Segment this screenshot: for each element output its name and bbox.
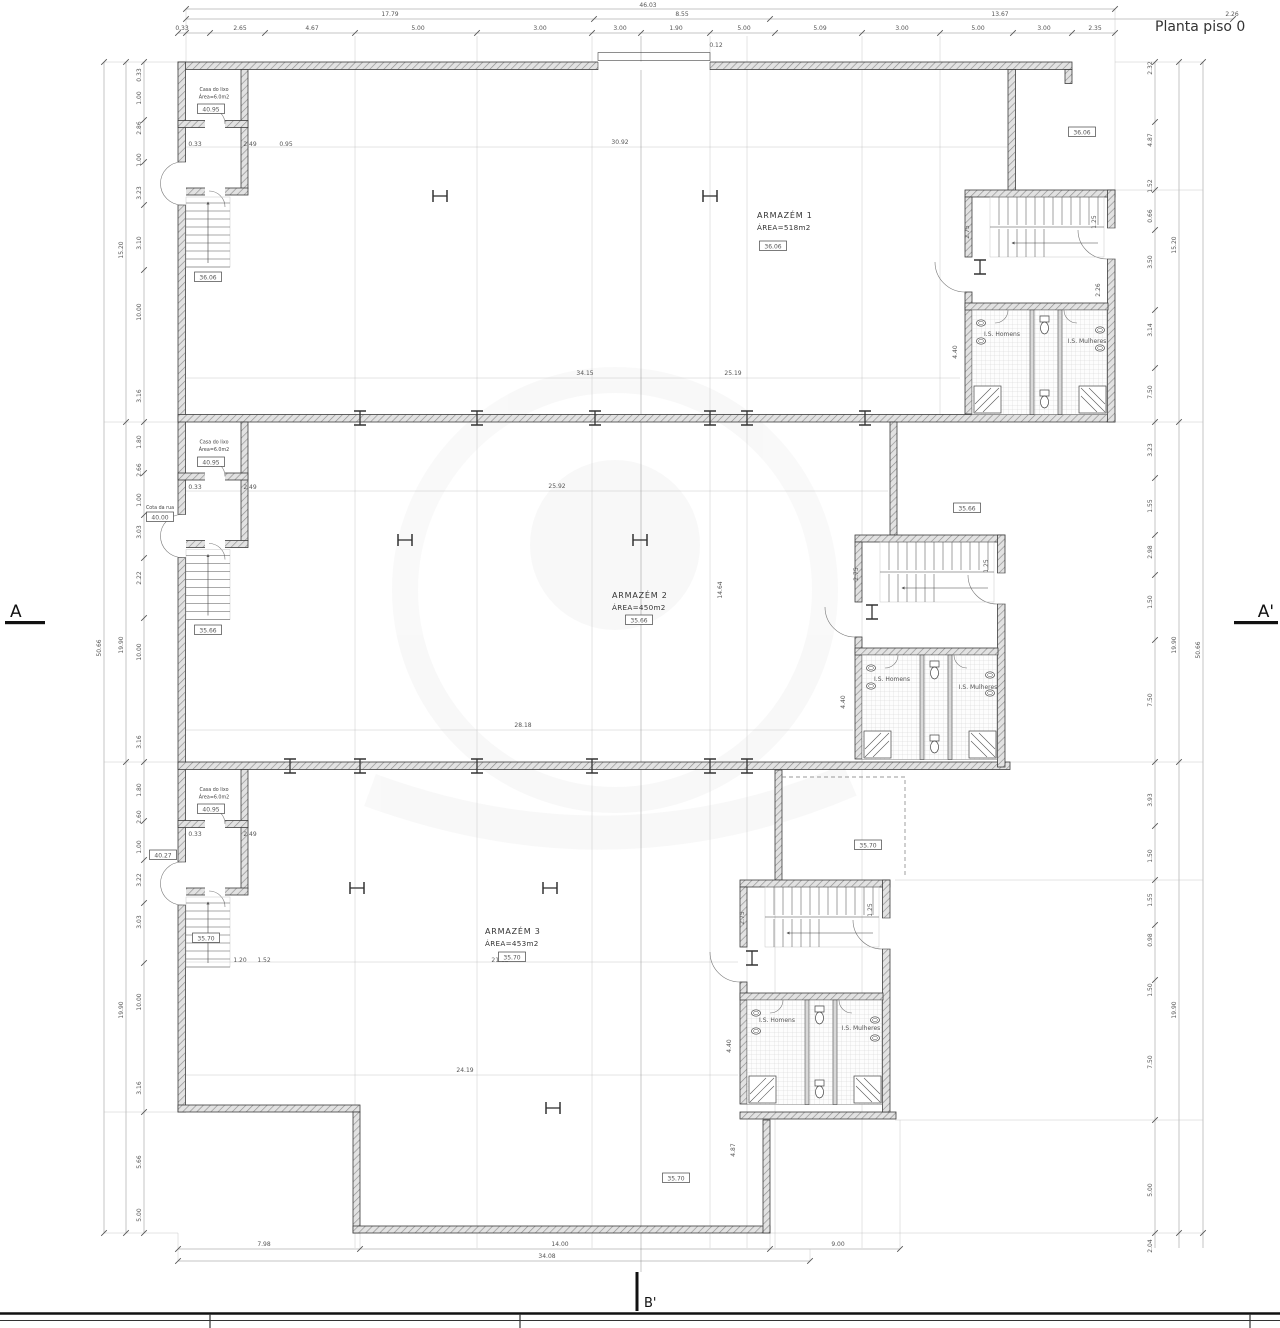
dim-label: 3.50 xyxy=(1147,255,1154,269)
unit3-area: ÁREA=453m2 xyxy=(485,939,539,948)
dim-label: 3.16 xyxy=(136,389,143,403)
dim-label: 9.00 xyxy=(831,1241,845,1248)
dim-label: 3.03 xyxy=(136,915,143,929)
dim-label: 1.50 xyxy=(1147,983,1154,997)
dim-label: 10.00 xyxy=(136,303,143,320)
unit3-label: ARMAZÉM 3 ÁREA=453m2 xyxy=(485,925,541,948)
svg-text:35.66: 35.66 xyxy=(630,617,647,624)
dim-label: 13.67 xyxy=(991,11,1008,18)
dim-label: 28.18 xyxy=(514,722,531,729)
dim-label: 0.95 xyxy=(279,141,293,148)
dim-label: 1.25 xyxy=(1091,215,1098,229)
dim-label: 0.33 xyxy=(175,25,189,32)
cota-box: 35.66 xyxy=(626,615,653,625)
dim-label: 5.00 xyxy=(971,25,985,32)
dim-label: 2.98 xyxy=(1147,545,1154,559)
dim-label: 0.66 xyxy=(1147,209,1154,223)
dim-label: I.S. Mulheres xyxy=(959,684,998,691)
dim-label: I.S. Homens xyxy=(759,1017,795,1024)
dim-label: 7.50 xyxy=(1147,385,1154,399)
cota-box: 40.95 xyxy=(198,104,225,114)
dim-label: 1.80 xyxy=(136,435,143,449)
unit1-label: ARMAZÉM 1 ÁREA=518m2 xyxy=(757,209,813,232)
dim-label: 2.35 xyxy=(1088,25,1102,32)
side-room-label-2: Casa do lixo Área=6.0m2 xyxy=(199,440,229,454)
column-i-section xyxy=(746,951,758,965)
svg-text:40.00: 40.00 xyxy=(151,514,168,521)
dim-label: 19.90 xyxy=(1171,636,1178,653)
cota-box: 35.70 xyxy=(499,952,526,962)
dim-label: 5.00 xyxy=(1147,1183,1154,1197)
dim-label: 2.65 xyxy=(233,25,247,32)
svg-text:36.06: 36.06 xyxy=(199,274,216,281)
cota-box: 36.06 xyxy=(760,241,787,251)
side-room-2-line1: Casa do lixo xyxy=(199,440,228,446)
walls xyxy=(178,62,1115,1233)
dim-label: 1.00 xyxy=(136,91,143,105)
dim-label: 19.90 xyxy=(118,636,125,653)
cota-box: 40.95 xyxy=(198,804,225,814)
unit1-name: ARMAZÉM 1 xyxy=(757,209,813,220)
dim-label: 24.19 xyxy=(456,1067,473,1074)
dim-label: 50.66 xyxy=(1195,641,1202,658)
svg-text:35.70: 35.70 xyxy=(667,1175,684,1182)
dim-label: 4.40 xyxy=(840,695,847,709)
dim-label: 3.00 xyxy=(613,25,627,32)
dim-label: 5.66 xyxy=(136,1155,143,1169)
dim-label: 2.86 xyxy=(136,121,143,135)
unit1-area: ÁREA=518m2 xyxy=(757,223,811,232)
cota-box: 40.00 xyxy=(147,512,174,522)
dim-label: 3.00 xyxy=(533,25,547,32)
svg-text:40.95: 40.95 xyxy=(202,806,219,813)
svg-text:35.70: 35.70 xyxy=(503,954,520,961)
cota-box: 40.95 xyxy=(198,457,225,467)
page-title: Planta piso 0 xyxy=(1155,19,1245,35)
column-h-section xyxy=(543,882,557,894)
dim-label: I.S. Mulheres xyxy=(842,1025,881,1032)
dim-label: 2.49 xyxy=(243,484,257,491)
dim-label: 3.23 xyxy=(136,186,143,200)
svg-text:36.06: 36.06 xyxy=(764,243,781,250)
cota-box: 36.06 xyxy=(1069,127,1096,137)
dim-label: 2.75 xyxy=(964,225,971,239)
dim-label: 4.87 xyxy=(730,1143,737,1157)
dim-label: 1.25 xyxy=(867,903,874,917)
column-h-section xyxy=(350,882,364,894)
cota-box: 36.06 xyxy=(195,272,222,282)
side-room-label-3: Casa do lixo Área=6.0m2 xyxy=(199,787,229,801)
dim-label: 4.40 xyxy=(726,1039,733,1053)
dim-label: 7.50 xyxy=(1147,693,1154,707)
dim-label: 2.75 xyxy=(853,567,860,581)
dim-label: 2.26 xyxy=(1095,283,1102,297)
cota-box: 40.27 xyxy=(150,850,177,860)
column-i-section xyxy=(866,605,878,619)
dim-label: 34.08 xyxy=(538,1253,555,1260)
side-room-label-1: Casa do lixo Área=6.0m2 xyxy=(199,87,229,101)
dim-label: 5.00 xyxy=(136,1208,143,1222)
drawing-sheet: 46.0317.798.5513.672.260.332.654.675.003… xyxy=(0,0,1280,1328)
dim-label: 2.66 xyxy=(136,463,143,477)
dim-label: 3.00 xyxy=(1037,25,1051,32)
dim-label: 0.33 xyxy=(188,484,202,491)
cota-box: 35.66 xyxy=(195,625,222,635)
dim-label: 1.00 xyxy=(136,493,143,507)
dim-label: 7.50 xyxy=(1147,1055,1154,1069)
dim-label: 2.49 xyxy=(243,831,257,838)
stair-wc-core xyxy=(935,190,1116,422)
dim-label: 34.15 xyxy=(576,370,593,377)
street-level-label: Cota da rua xyxy=(146,505,174,511)
dim-label: 19.90 xyxy=(1171,1001,1178,1018)
dim-label: 4.67 xyxy=(305,25,319,32)
dim-label: 15.20 xyxy=(118,241,125,258)
dim-label: 2.04 xyxy=(1147,1239,1154,1253)
dim-label: 1.52 xyxy=(257,957,271,964)
dim-label: 15.20 xyxy=(1171,236,1178,253)
dim-label: 10.00 xyxy=(136,993,143,1010)
dim-label: 5.00 xyxy=(411,25,425,32)
unit3-name: ARMAZÉM 3 xyxy=(485,925,541,936)
section-marker-a-prime: A' xyxy=(1234,602,1278,624)
dim-label: 3.16 xyxy=(136,1081,143,1095)
unit2-area: ÁREA=450m2 xyxy=(612,603,666,612)
side-room-1-line2: Área=6.0m2 xyxy=(199,94,229,101)
section-marker-a: A xyxy=(5,602,45,624)
svg-text:35.70: 35.70 xyxy=(197,935,214,942)
dim-label: 1.50 xyxy=(1147,595,1154,609)
dim-label: 46.03 xyxy=(639,2,656,9)
section-b-prime-label: B' xyxy=(644,1296,657,1311)
section-a-label: A xyxy=(10,602,22,622)
dim-label: 1.80 xyxy=(136,783,143,797)
dim-label: 2.75 xyxy=(739,911,746,925)
dim-label: 1.52 xyxy=(1147,179,1154,193)
dim-label: 17.79 xyxy=(381,11,398,18)
dim-label: 3.03 xyxy=(136,525,143,539)
dim-label: 4.87 xyxy=(1147,133,1154,147)
cota-box: 35.66 xyxy=(954,503,981,513)
dim-label: 14.64 xyxy=(717,581,724,598)
dim-label: 3.23 xyxy=(1147,443,1154,457)
unit2-name: ARMAZÉM 2 xyxy=(612,589,668,600)
dim-label: 3.93 xyxy=(1147,793,1154,807)
column-i-section xyxy=(974,260,986,274)
dim-label: I.S. Homens xyxy=(874,676,910,683)
dim-label: 1.25 xyxy=(983,559,990,573)
dim-label: 5.09 xyxy=(813,25,827,32)
dim-label: 2.60 xyxy=(136,810,143,824)
dim-label: I.S. Homens xyxy=(984,331,1020,338)
stair-wc-core-3 xyxy=(710,880,891,1112)
section-a-prime-line xyxy=(1234,621,1278,624)
cota-box: 35.70 xyxy=(663,1173,690,1183)
svg-text:36.06: 36.06 xyxy=(1073,129,1090,136)
section-a-line xyxy=(5,621,45,624)
dim-label: 3.14 xyxy=(1147,323,1154,337)
dim-label: I.S. Mulheres xyxy=(1068,338,1107,345)
dim-label: 1.55 xyxy=(1147,499,1154,513)
dim-label: 3.16 xyxy=(136,735,143,749)
svg-text:35.66: 35.66 xyxy=(199,627,216,634)
dim-label: 0.33 xyxy=(188,831,202,838)
dim-label: 7.98 xyxy=(257,1241,271,1248)
dim-label: 3.22 xyxy=(136,873,143,887)
column-h-section xyxy=(546,1102,560,1114)
side-room-3-line1: Casa do lixo xyxy=(199,787,228,793)
title-block xyxy=(0,1314,1280,1328)
svg-text:35.66: 35.66 xyxy=(958,505,975,512)
svg-text:35.70: 35.70 xyxy=(859,842,876,849)
dim-label: 1.55 xyxy=(1147,893,1154,907)
dim-label: 4.40 xyxy=(952,345,959,359)
column-h-section xyxy=(433,190,447,202)
side-room-3-line2: Área=6.0m2 xyxy=(199,794,229,801)
dim-label: 5.00 xyxy=(737,25,751,32)
dim-label: 3.10 xyxy=(136,236,143,250)
dim-label: 1.90 xyxy=(669,25,683,32)
dim-label: 25.92 xyxy=(548,483,565,490)
dim-label: 30.92 xyxy=(611,139,628,146)
svg-text:40.95: 40.95 xyxy=(202,459,219,466)
dim-label: 19.90 xyxy=(118,1001,125,1018)
section-marker-b-prime: B' xyxy=(637,1272,657,1311)
level-boxes: 36.0635.6635.7040.9540.9540.9540.0040.27… xyxy=(147,104,1096,1183)
dim-label: 8.55 xyxy=(675,11,689,18)
dim-label: 0.33 xyxy=(136,68,143,82)
dim-label: 1.50 xyxy=(1147,849,1154,863)
section-a-prime-label: A' xyxy=(1258,602,1274,622)
dim-label: 2.22 xyxy=(136,571,143,585)
dim-label: 50.66 xyxy=(96,639,103,656)
dim-label: 2.32 xyxy=(1147,61,1154,75)
dim-label: 1.20 xyxy=(233,957,247,964)
side-room-1-line1: Casa do lixo xyxy=(199,87,228,93)
dim-label: 1.00 xyxy=(136,153,143,167)
dim-label: 14.00 xyxy=(551,1241,568,1248)
svg-text:40.27: 40.27 xyxy=(154,852,171,859)
cota-box: 35.70 xyxy=(193,933,220,943)
dim-label: 0.12 xyxy=(709,42,723,49)
dim-label: 0.98 xyxy=(1147,933,1154,947)
side-room-2-line2: Área=6.0m2 xyxy=(199,446,229,453)
dim-label: 0.33 xyxy=(188,141,202,148)
dim-label: 1.00 xyxy=(136,840,143,854)
gate-opening xyxy=(598,53,710,71)
dim-label: 25.19 xyxy=(724,370,741,377)
cota-box: 35.70 xyxy=(855,840,882,850)
dim-label: 10.00 xyxy=(136,643,143,660)
dim-label: 3.00 xyxy=(895,25,909,32)
svg-text:40.95: 40.95 xyxy=(202,106,219,113)
dim-label: 2.26 xyxy=(1225,11,1239,18)
dim-label: 2.49 xyxy=(243,141,257,148)
